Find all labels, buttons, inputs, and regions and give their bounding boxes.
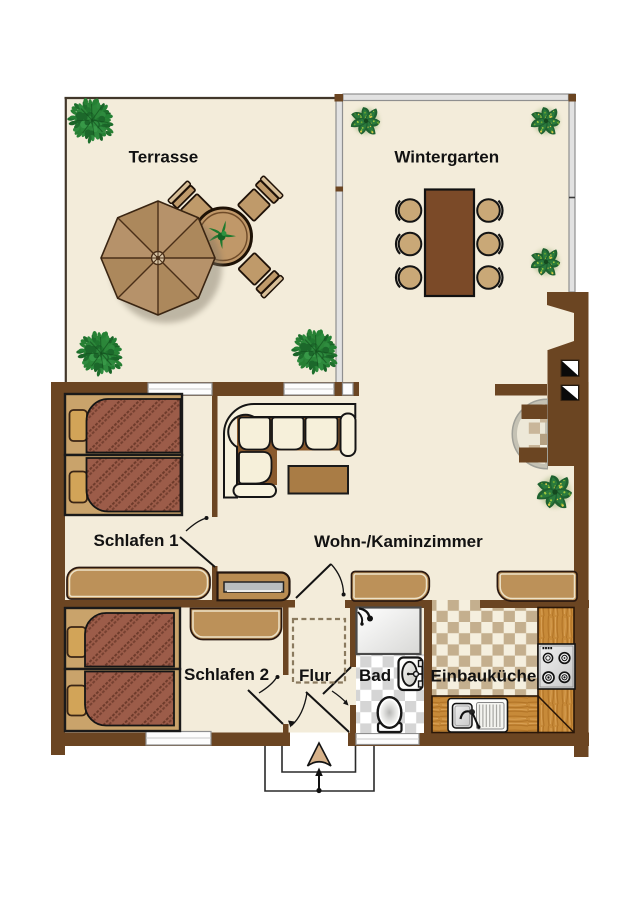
svg-text:Wohn-/Kaminzimmer: Wohn-/Kaminzimmer xyxy=(314,532,483,551)
svg-text:Schlafen 2: Schlafen 2 xyxy=(184,665,269,684)
svg-text:Bad: Bad xyxy=(359,666,391,685)
svg-text:Schlafen 1: Schlafen 1 xyxy=(94,531,179,550)
svg-text:Wintergarten: Wintergarten xyxy=(394,148,499,167)
svg-text:Flur: Flur xyxy=(299,666,331,685)
svg-text:Einbauküche: Einbauküche xyxy=(431,667,537,686)
svg-text:Terrasse: Terrasse xyxy=(129,147,199,166)
